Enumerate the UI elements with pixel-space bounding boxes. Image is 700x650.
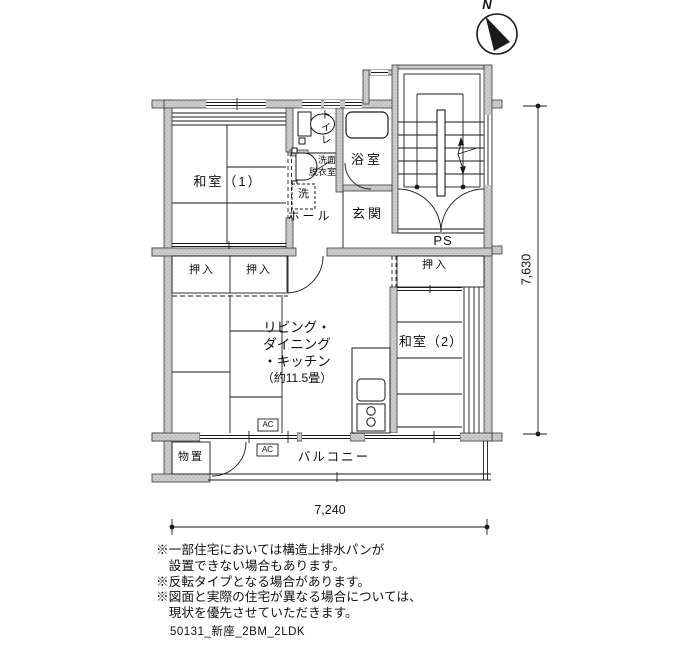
room-label-ldk-line1: リビング・ [247,319,347,336]
dimension-width: 7,240 [280,503,380,518]
room-label-ldk-line2: ダイニング [247,336,347,353]
room-label-senmen-line1: 洗面 [296,155,336,167]
label-pipe-space: PS [420,233,466,249]
staircase [398,74,484,233]
room-label-monooki: 物置 [171,451,211,464]
bathtub-fixture [346,112,388,138]
north-label: N [476,0,498,13]
room-label-ldk: リビング・ ダイニング ・キッチン （約11.5畳） [247,319,347,387]
north-arrow-icon [477,14,517,54]
notes-block: ※一部住宅においては構造上排水パンが 設置できない場合もあります。 ※反転タイプ… [156,543,422,622]
room-label-ldk-line4: （約11.5畳） [247,370,347,387]
room-label-hall: ホール [284,209,336,223]
room-label-washitsu2: 和室（2） [398,334,464,350]
closet-label-b: 押入 [231,264,287,277]
dimension-height: 7,630 [520,240,535,300]
note-line: ※反転タイプとなる場合があります。 [156,575,422,591]
floorplan-page: N 和室（1） トイレ 洗面 脱衣室 洗 ホール 浴室 玄関 PS 押入 押入 … [0,0,700,650]
label-laundry: 洗 [292,188,315,201]
note-line: ※図面と実際の住宅が異なる場合については、 [156,590,422,606]
file-label: 50131_新座_2BM_2LDK [170,626,305,640]
ac-unit-label-lower: AC [257,444,278,456]
note-line: ※一部住宅においては構造上排水パンが [156,543,422,559]
room-label-senmen: 洗面 脱衣室 [296,155,336,178]
closet-label-c: 押入 [407,259,463,272]
room-label-genkan: 玄関 [342,206,394,222]
kitchen-counter [352,348,390,433]
room-label-toilet: トイレ [319,109,332,159]
note-line: 現状を優先させていただきます。 [156,606,422,622]
room-label-senmen-line2: 脱衣室 [296,167,336,179]
room-label-ldk-line3: ・キッチン [247,353,347,370]
closet-label-a: 押入 [174,264,230,277]
ac-unit-label-upper: AC [258,419,278,431]
room-label-washitsu1: 和室（1） [175,174,281,190]
room-label-balcony: バルコニー [288,450,380,465]
note-line: 設置できない場合もあります。 [156,559,422,575]
room-label-bath: 浴室 [341,152,393,168]
